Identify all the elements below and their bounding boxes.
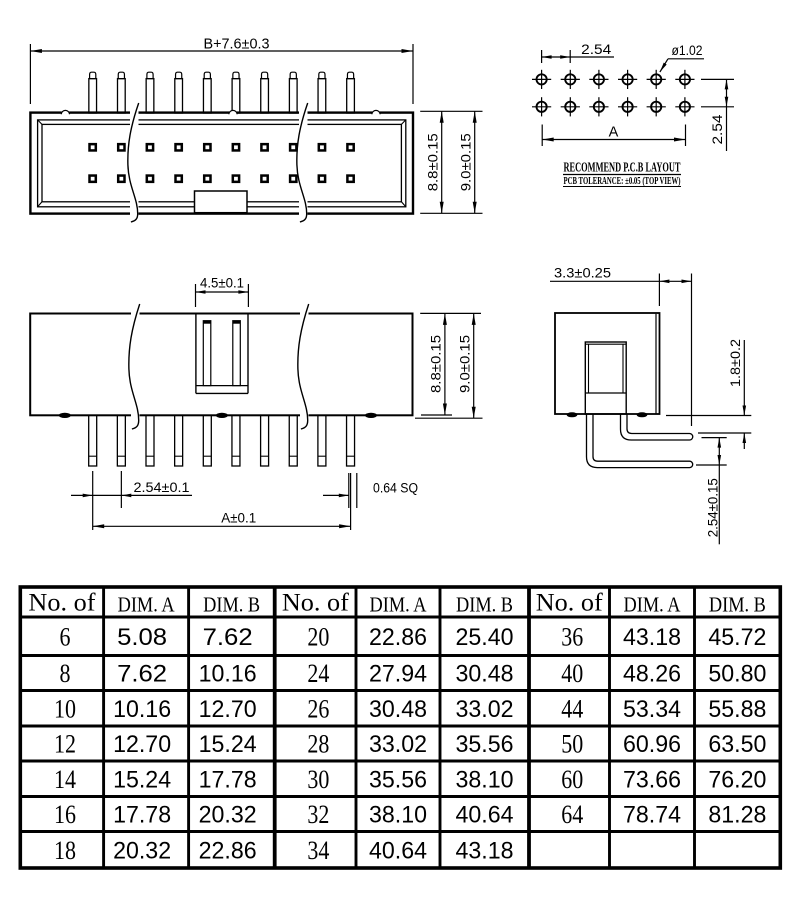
svg-text:30.48: 30.48 — [369, 696, 427, 723]
svg-text:64: 64 — [561, 799, 583, 829]
svg-text:9.0±0.15: 9.0±0.15 — [458, 133, 473, 191]
svg-text:22.86: 22.86 — [199, 837, 257, 864]
svg-text:8.8±0.15: 8.8±0.15 — [429, 335, 444, 393]
svg-text:33.02: 33.02 — [369, 731, 427, 758]
svg-text:40: 40 — [561, 658, 583, 688]
svg-text:50: 50 — [561, 729, 583, 759]
svg-text:50.80: 50.80 — [708, 661, 766, 688]
svg-text:2.54: 2.54 — [581, 42, 612, 57]
svg-text:10: 10 — [54, 693, 76, 723]
svg-text:8: 8 — [59, 658, 70, 688]
svg-text:26: 26 — [307, 693, 329, 723]
svg-text:15.24: 15.24 — [199, 731, 257, 758]
svg-text:35.56: 35.56 — [456, 731, 514, 758]
svg-text:8.8±0.15: 8.8±0.15 — [425, 133, 440, 191]
svg-text:12.70: 12.70 — [113, 731, 171, 758]
svg-text:DIM. B: DIM. B — [203, 593, 260, 617]
svg-text:63.50: 63.50 — [708, 731, 766, 758]
svg-text:No. of: No. of — [282, 590, 350, 617]
svg-text:ø1.02: ø1.02 — [672, 43, 703, 58]
svg-text:30.48: 30.48 — [456, 661, 514, 688]
svg-text:9.0±0.15: 9.0±0.15 — [457, 335, 472, 393]
svg-text:No. of: No. of — [28, 590, 96, 617]
svg-text:76.20: 76.20 — [708, 766, 766, 793]
svg-text:43.18: 43.18 — [623, 624, 681, 651]
svg-text:25.40: 25.40 — [456, 624, 514, 651]
svg-text:60: 60 — [561, 764, 583, 794]
svg-text:RECOMMEND P.C.B LAYOUT: RECOMMEND P.C.B LAYOUT — [564, 160, 681, 175]
svg-text:16: 16 — [54, 799, 76, 829]
svg-text:1.8±0.2: 1.8±0.2 — [728, 339, 743, 387]
svg-text:7.62: 7.62 — [203, 624, 253, 651]
svg-text:20.32: 20.32 — [113, 837, 171, 864]
svg-text:7.62: 7.62 — [117, 661, 167, 688]
svg-text:24: 24 — [307, 658, 329, 688]
svg-text:36: 36 — [561, 621, 583, 651]
svg-text:53.34: 53.34 — [623, 696, 681, 723]
svg-text:B+7.6±0.3: B+7.6±0.3 — [204, 37, 270, 53]
svg-text:34: 34 — [307, 835, 329, 865]
svg-text:60.96: 60.96 — [623, 731, 681, 758]
svg-text:38.10: 38.10 — [456, 766, 514, 793]
svg-text:78.74: 78.74 — [623, 802, 681, 829]
svg-text:2.54±0.1: 2.54±0.1 — [134, 480, 190, 495]
svg-text:38.10: 38.10 — [369, 802, 427, 829]
svg-text:DIM. A: DIM. A — [370, 593, 428, 617]
svg-text:81.28: 81.28 — [708, 802, 766, 829]
svg-text:48.26: 48.26 — [623, 661, 681, 688]
svg-text:10.16: 10.16 — [199, 661, 257, 688]
svg-text:10.16: 10.16 — [113, 696, 171, 723]
svg-text:6: 6 — [59, 621, 70, 651]
svg-text:55.88: 55.88 — [708, 696, 766, 723]
svg-text:4.5±0.1: 4.5±0.1 — [200, 276, 244, 291]
svg-text:No. of: No. of — [536, 590, 604, 617]
svg-text:27.94: 27.94 — [369, 661, 427, 688]
svg-text:32: 32 — [307, 799, 329, 829]
svg-text:DIM. A: DIM. A — [624, 593, 682, 617]
svg-text:20: 20 — [307, 621, 329, 651]
svg-text:12: 12 — [54, 729, 76, 759]
svg-text:DIM. B: DIM. B — [709, 593, 766, 617]
svg-text:20.32: 20.32 — [199, 802, 257, 829]
svg-text:22.86: 22.86 — [369, 624, 427, 651]
svg-text:17.78: 17.78 — [199, 766, 257, 793]
svg-text:28: 28 — [307, 729, 329, 759]
svg-text:5.08: 5.08 — [117, 624, 167, 651]
svg-text:15.24: 15.24 — [113, 766, 171, 793]
svg-text:14: 14 — [54, 764, 76, 794]
svg-text:35.56: 35.56 — [369, 766, 427, 793]
svg-text:12.70: 12.70 — [199, 696, 257, 723]
svg-text:DIM. B: DIM. B — [456, 593, 513, 617]
svg-text:0.64 SQ: 0.64 SQ — [373, 481, 418, 496]
svg-text:PCB TOLERANCE: ±0.05 (TOP VIEW: PCB TOLERANCE: ±0.05 (TOP VIEW) — [564, 176, 681, 187]
svg-text:40.64: 40.64 — [456, 802, 514, 829]
svg-text:A±0.1: A±0.1 — [221, 511, 256, 526]
svg-text:45.72: 45.72 — [708, 624, 766, 651]
svg-text:DIM. A: DIM. A — [118, 593, 176, 617]
svg-text:44: 44 — [561, 693, 583, 723]
svg-text:2.54±0.15: 2.54±0.15 — [705, 478, 720, 537]
svg-text:43.18: 43.18 — [456, 837, 514, 864]
svg-text:73.66: 73.66 — [623, 766, 681, 793]
svg-text:40.64: 40.64 — [369, 837, 427, 864]
svg-text:17.78: 17.78 — [113, 802, 171, 829]
svg-text:33.02: 33.02 — [456, 696, 514, 723]
svg-text:3.3±0.25: 3.3±0.25 — [554, 266, 611, 281]
svg-text:30: 30 — [307, 764, 329, 794]
svg-text:A: A — [609, 125, 619, 141]
svg-text:2.54: 2.54 — [710, 114, 725, 145]
svg-text:18: 18 — [54, 835, 76, 865]
